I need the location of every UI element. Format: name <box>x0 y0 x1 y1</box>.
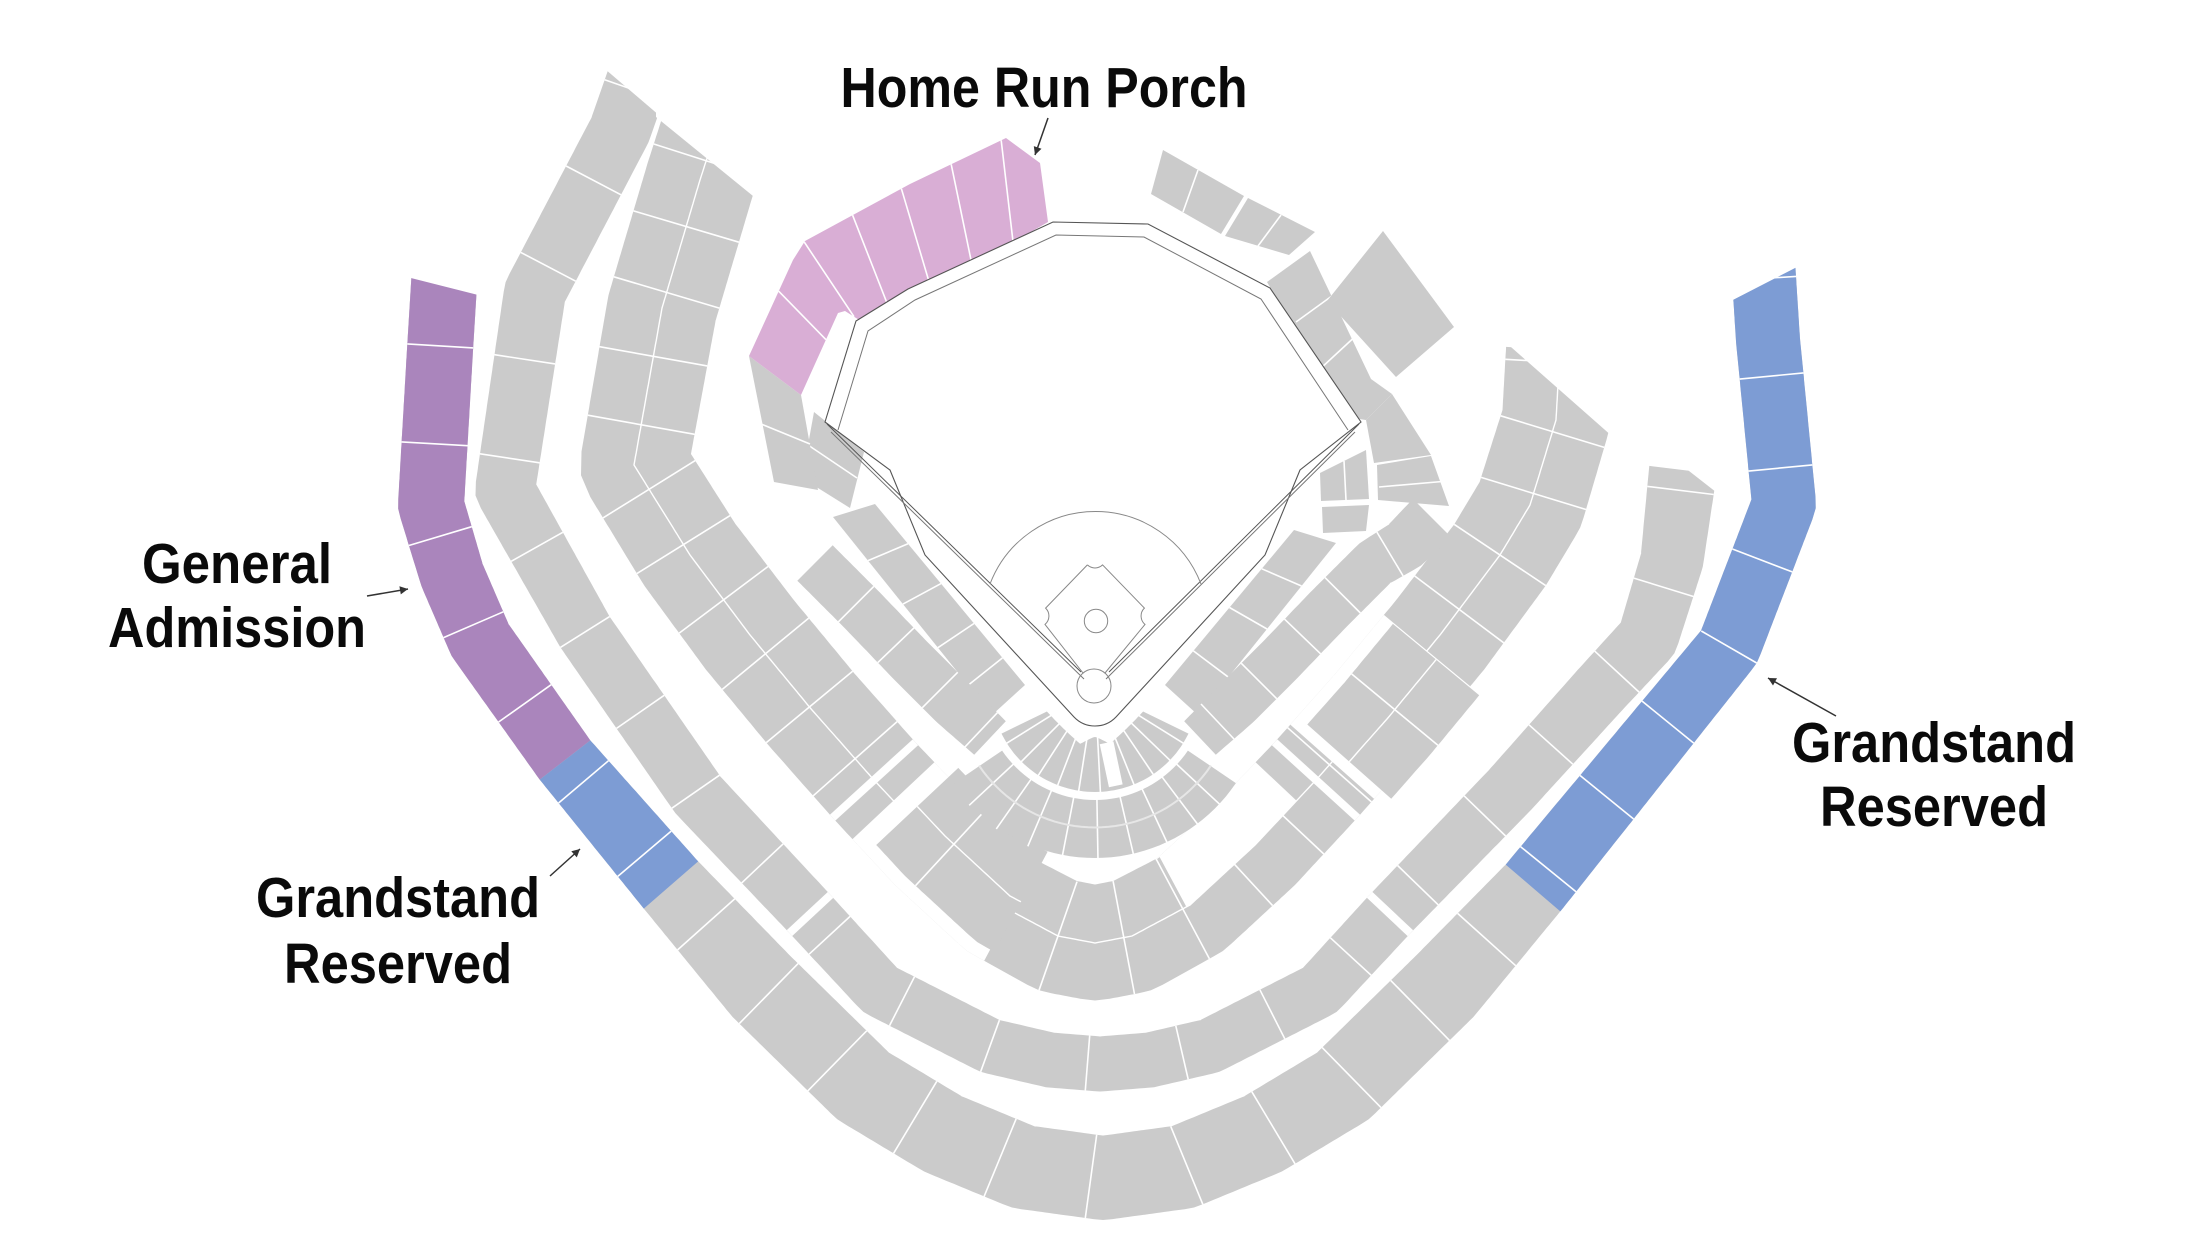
svg-text:General: General <box>142 532 332 596</box>
svg-text:Grandstand: Grandstand <box>1792 711 2076 775</box>
svg-text:Home Run Porch: Home Run Porch <box>841 56 1248 120</box>
svg-text:Reserved: Reserved <box>1820 775 2048 839</box>
svg-text:Grandstand: Grandstand <box>256 866 540 930</box>
svg-text:Admission: Admission <box>108 596 366 660</box>
svg-text:Reserved: Reserved <box>284 932 512 996</box>
